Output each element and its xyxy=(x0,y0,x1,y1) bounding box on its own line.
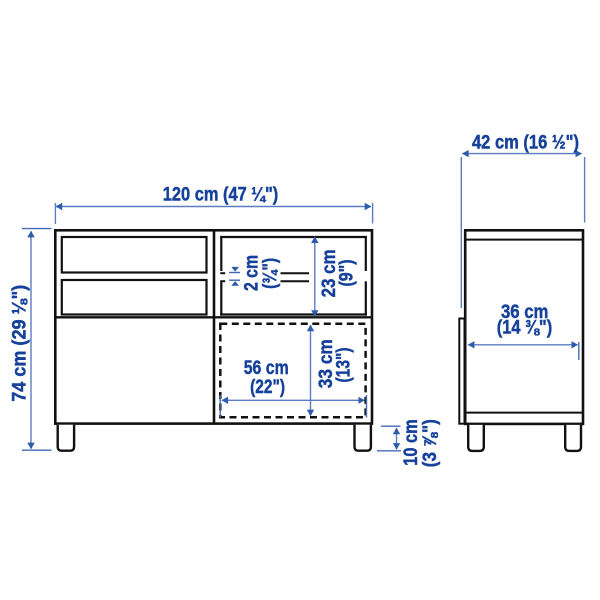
svg-text:(¾"): (¾") xyxy=(260,258,281,289)
svg-text:120 cm (47 ¼"): 120 cm (47 ¼") xyxy=(163,185,279,206)
svg-text:56 cm: 56 cm xyxy=(244,358,289,379)
svg-text:(13"): (13") xyxy=(333,348,354,383)
svg-text:42 cm (16 ½"): 42 cm (16 ½") xyxy=(472,133,579,154)
svg-text:74 cm (29 ⅛"): 74 cm (29 ⅛") xyxy=(9,285,30,402)
svg-text:10 cm: 10 cm xyxy=(401,419,422,466)
svg-text:(3 ⅞"): (3 ⅞") xyxy=(420,419,441,467)
svg-text:(14 ⅜"): (14 ⅜") xyxy=(497,318,553,339)
svg-text:(9"): (9") xyxy=(336,260,357,287)
svg-text:(22"): (22") xyxy=(250,377,285,398)
